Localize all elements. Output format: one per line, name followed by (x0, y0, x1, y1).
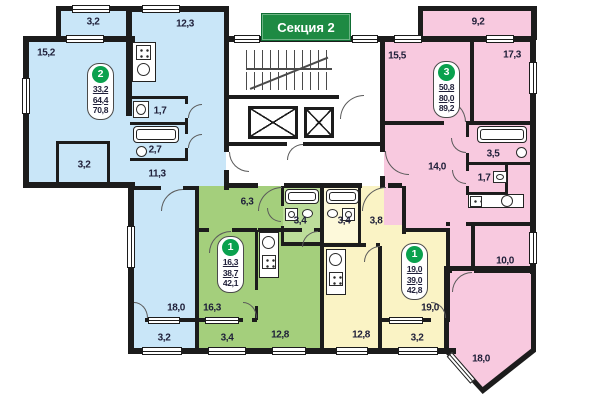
dim-blue-wc: 1,7 (154, 106, 167, 117)
wall (418, 6, 537, 11)
dim-blue-bath: 2,7 (149, 145, 162, 156)
wall (183, 186, 195, 190)
stove-icon (470, 196, 482, 207)
wall (446, 222, 450, 226)
wall (255, 230, 258, 290)
door-arc (229, 152, 249, 172)
wall (56, 141, 59, 185)
sink-icon (516, 147, 527, 158)
area-total: 80,0 (434, 93, 459, 104)
door-arc (340, 95, 364, 119)
dim-green-room: 16,3 (203, 303, 221, 314)
dim-green-kitchen: 12,8 (271, 330, 289, 341)
apartment-card-green[interactable]: 1 16,3 38,7 42,1 (217, 236, 244, 293)
window (272, 347, 306, 355)
wall (224, 6, 229, 152)
dim-pink-bath: 3,5 (487, 149, 500, 160)
wall (229, 95, 339, 99)
bathtub-icon (477, 126, 527, 143)
apartment-card-pink[interactable]: 3 50,8 80,0 89,2 (433, 61, 460, 118)
dim-green-balcony: 3,4 (221, 333, 234, 344)
door-arc (287, 144, 303, 160)
wall (466, 121, 532, 125)
stairs (246, 72, 332, 90)
wall (466, 222, 532, 226)
wall (320, 186, 324, 348)
wall (131, 186, 161, 190)
dim-pink-wc: 1,7 (478, 173, 491, 184)
dim-pink-room-a: 15,5 (388, 51, 406, 62)
window (148, 317, 180, 324)
apartment-card-yellow[interactable]: 1 19,0 39,0 42,8 (401, 243, 428, 300)
area-total: 64,4 (88, 95, 113, 106)
wall (470, 40, 474, 125)
wall (232, 228, 257, 232)
wall (284, 183, 362, 188)
wall (185, 118, 188, 134)
stairs-landing-line (246, 68, 332, 70)
dim-pink-room-b: 17,3 (503, 50, 521, 61)
area-total: 38,7 (218, 268, 243, 279)
floor-plan: 3,2 15,2 12,3 1,7 2,7 3,2 11,3 18,0 3,2 … (0, 0, 600, 400)
window (72, 5, 110, 13)
washer-icon (133, 101, 149, 118)
window (208, 347, 246, 355)
stove-icon (136, 45, 151, 60)
bathtub-icon (133, 126, 179, 143)
wall (466, 125, 469, 137)
wall (402, 186, 406, 234)
window (394, 35, 422, 43)
bathtub-icon (326, 189, 359, 204)
wall (281, 226, 284, 242)
elevator-shaft (304, 107, 334, 138)
wall (402, 228, 450, 232)
wall (445, 318, 450, 322)
dim-pink-room-c: 10,0 (496, 256, 514, 267)
wall (531, 6, 537, 40)
area-full: 89,2 (434, 103, 459, 114)
wall (107, 141, 110, 185)
sink-icon (262, 236, 275, 249)
room-fill-pink-hall-strip (404, 186, 448, 232)
sink-icon (329, 253, 342, 266)
dim-green-bath: 3,4 (294, 216, 307, 227)
wall (446, 268, 452, 273)
apartment-number-badge: 3 (438, 64, 455, 81)
wall (195, 186, 199, 352)
dim-green-hall: 6,3 (241, 197, 254, 208)
dim-yellow-hall: 3,8 (370, 216, 383, 227)
dim-pink-kitchen-living: 14,0 (428, 162, 446, 173)
wall (303, 142, 384, 146)
dim-blue-closet: 3,2 (78, 160, 91, 171)
wall (185, 96, 188, 104)
wall (446, 228, 450, 322)
elevator-shaft (248, 106, 298, 139)
apartment-card-blue[interactable]: 2 33,2 64,4 70,8 (87, 63, 114, 120)
window (127, 226, 135, 268)
wall (199, 228, 209, 232)
window (529, 62, 537, 94)
window (389, 317, 423, 324)
wall (185, 318, 195, 322)
window (336, 347, 368, 355)
dim-pink-room-d: 18,0 (472, 354, 490, 365)
dim-yellow-bath: 3,4 (338, 216, 351, 227)
washer-icon (493, 171, 507, 183)
wall (130, 158, 188, 161)
wall (466, 162, 532, 165)
wall (131, 318, 134, 322)
wall (229, 183, 258, 188)
wall (384, 121, 444, 125)
window (22, 78, 30, 114)
dim-pink-balcony-top: 9,2 (472, 17, 485, 28)
window (352, 35, 378, 43)
sink-icon (137, 63, 150, 76)
dim-blue-room-second: 18,0 (167, 303, 185, 314)
wall (380, 40, 385, 152)
wall (56, 141, 110, 144)
area-living: 33,2 (88, 84, 113, 95)
area-full: 42,8 (402, 285, 427, 296)
wall (229, 142, 287, 146)
dim-yellow-room: 19,0 (421, 303, 439, 314)
dim-blue-balcony-top: 3,2 (87, 17, 100, 28)
bathtub-icon (285, 189, 319, 204)
apartment-number-badge: 2 (92, 66, 109, 83)
area-living: 19,0 (402, 264, 427, 275)
sink-icon (327, 209, 338, 218)
area-full: 70,8 (88, 105, 113, 116)
dim-yellow-balcony: 3,2 (411, 333, 424, 344)
dim-yellow-kitchen: 12,8 (352, 330, 370, 341)
dim-blue-kitchen: 12,3 (176, 19, 194, 30)
dim-blue-balcony-bottom: 3,2 (158, 333, 171, 344)
window (205, 317, 239, 324)
window (142, 347, 182, 355)
wall (471, 226, 475, 270)
sink-icon (501, 195, 513, 207)
dim-blue-hall: 11,3 (148, 169, 165, 180)
sink-icon (136, 146, 147, 157)
window (486, 35, 514, 43)
wall (252, 318, 257, 322)
room-fill-pink-room-10 (448, 225, 532, 272)
wall (466, 165, 469, 171)
wall (23, 182, 135, 188)
window (234, 35, 260, 43)
area-living: 50,8 (434, 82, 459, 93)
wall (128, 182, 134, 354)
wall (324, 243, 366, 247)
dim-blue-room-main: 15,2 (37, 48, 55, 59)
room-fill-blue-kitchen (130, 10, 226, 188)
apartment-number-badge: 1 (222, 239, 239, 256)
apartment-number-badge: 1 (406, 246, 423, 263)
wall (130, 122, 188, 125)
section-banner: Секция 2 (261, 13, 351, 41)
window (529, 232, 537, 264)
stove-icon (329, 272, 343, 286)
window (142, 5, 180, 13)
area-living: 16,3 (218, 257, 243, 268)
wall (130, 96, 188, 99)
wall (185, 148, 188, 161)
window (66, 35, 104, 43)
area-full: 42,1 (218, 278, 243, 289)
wall (474, 268, 532, 273)
wall (388, 183, 402, 188)
stove-icon (262, 255, 276, 269)
area-total: 39,0 (402, 275, 427, 286)
window (398, 347, 438, 355)
